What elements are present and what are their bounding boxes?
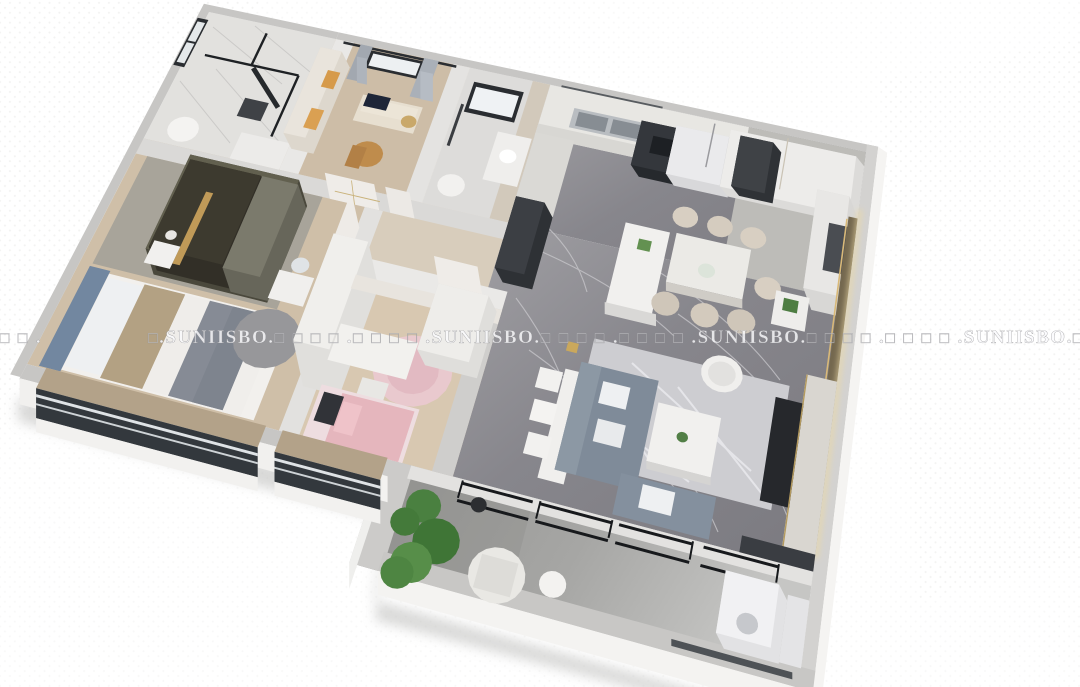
svg-text:SUNIISBO.□□□□.□□□□.: SUNIISBO.□□□□.□□□□. xyxy=(0,327,42,348)
svg-text:□.SUNIISBO.□□□□.□□□□.SUNIISBO.: □.SUNIISBO.□□□□.□□□□.SUNIISBO.□□□□.□□□□.… xyxy=(148,327,1080,348)
